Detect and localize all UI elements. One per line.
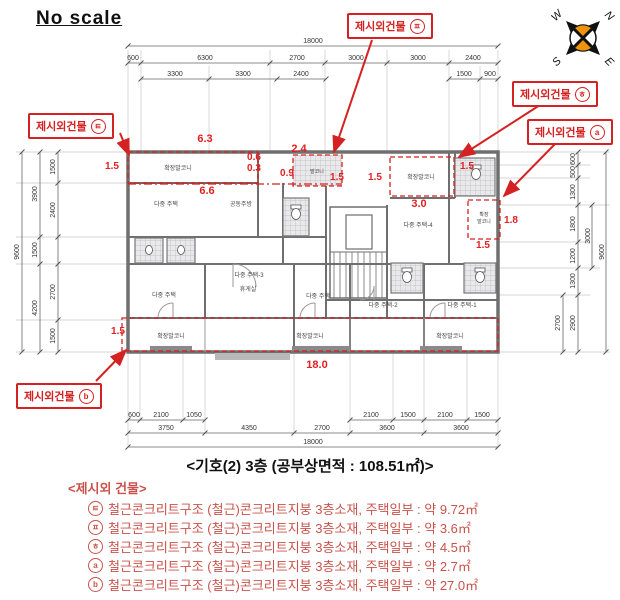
dim-label: 2100 bbox=[363, 412, 379, 419]
legend-item-text: 철근콘크리트구조 (철근)콘크리트지붕 3층소재, 주택일부 : 약 27.0㎡ bbox=[108, 575, 478, 594]
red-dim: 6.6 bbox=[199, 185, 214, 197]
callout-label: 제시외건물 bbox=[520, 86, 571, 102]
dim-label: 3000 bbox=[410, 55, 426, 62]
dim-label: 2700 bbox=[289, 55, 305, 62]
annex-symbol: ㅎ bbox=[575, 87, 590, 102]
room-label: 확장발코니 bbox=[407, 173, 435, 181]
dim-label: 600 bbox=[127, 55, 139, 62]
dim-label: 2700 bbox=[314, 425, 330, 432]
dim-label: 3000 bbox=[585, 228, 592, 244]
room-label: 확장발코니 bbox=[157, 332, 185, 340]
legend-item: ㅌ 철근콘크리트구조 (철근)콘크리트지붕 3층소재, 주택일부 : 약 9.7… bbox=[88, 499, 478, 518]
room-label: 다중 주택 bbox=[152, 291, 176, 299]
dim-label: 9600 bbox=[599, 244, 606, 260]
room-label: 다중 주택 bbox=[306, 292, 330, 300]
red-dim: 1.5 bbox=[330, 172, 344, 183]
red-dim: 18.0 bbox=[306, 359, 327, 371]
room-label: 발코니 bbox=[477, 218, 491, 225]
dim-label: 3300 bbox=[167, 71, 183, 78]
legend-item-text: 철근콘크리트구조 (철근)콘크리트지붕 3층소재, 주택일부 : 약 3.6㎡ bbox=[108, 518, 471, 537]
dim-label: 3600 bbox=[453, 425, 469, 432]
legend-item-text: 철근콘크리트구조 (철근)콘크리트지붕 3층소재, 주택일부 : 약 9.72㎡ bbox=[108, 499, 478, 518]
dim-label: 18000 bbox=[303, 38, 323, 45]
annex-symbol: b bbox=[88, 577, 103, 592]
dim-label: 1500 bbox=[400, 412, 416, 419]
dim-label: 1500 bbox=[456, 71, 472, 78]
red-dim: 2.4 bbox=[291, 143, 307, 155]
callout-label: 제시외건물 bbox=[535, 124, 586, 140]
red-dim: 0.6 bbox=[247, 152, 261, 163]
dim-label: 900 bbox=[484, 71, 496, 78]
red-dim: 1.8 bbox=[504, 215, 518, 226]
red-dim: 1.5 bbox=[105, 161, 119, 172]
dim-label: 6300 bbox=[197, 55, 213, 62]
dim-label: 1200 bbox=[570, 248, 577, 264]
compass-w: W bbox=[549, 7, 566, 24]
dim-label: 1050 bbox=[186, 412, 202, 419]
stairwell bbox=[330, 207, 387, 298]
dim-label: 2700 bbox=[555, 315, 562, 331]
dim-label: 3600 bbox=[379, 425, 395, 432]
room-label: 확장 bbox=[479, 211, 489, 218]
dim-label: 1500 bbox=[474, 412, 490, 419]
dim-label: 1300 bbox=[570, 184, 577, 200]
annex-symbol: ㅌ bbox=[91, 119, 106, 134]
red-dim: 6.3 bbox=[197, 133, 212, 145]
callout-label: 제시외건물 bbox=[24, 388, 75, 404]
annex-symbol: a bbox=[88, 558, 103, 573]
legend-heading: <제시외 건물> bbox=[68, 478, 478, 497]
callout-annex-right-upper: 제시외건물 ㅎ bbox=[512, 81, 598, 107]
red-dim: 1.5 bbox=[111, 326, 125, 337]
annex-symbol: a bbox=[590, 125, 605, 140]
extension-lines bbox=[16, 50, 610, 447]
room-label: 발코니 bbox=[310, 168, 324, 175]
callout-annex-bottom: 제시외건물 b bbox=[16, 383, 102, 409]
callout-annex-top: 제시외건물 ㅍ bbox=[347, 13, 433, 39]
legend-item-text: 철근콘크리트구조 (철근)콘크리트지붕 3층소재, 주택일부 : 약 4.5㎡ bbox=[108, 537, 471, 556]
dim-label: 600 bbox=[128, 412, 140, 419]
red-dim: 1.5 bbox=[476, 240, 490, 251]
dim-label: 1500 bbox=[32, 242, 39, 258]
dim-label: 2400 bbox=[50, 202, 57, 218]
dim-label: 3300 bbox=[235, 71, 251, 78]
dim-label: 18000 bbox=[303, 439, 323, 446]
dim-label: 3000 bbox=[348, 55, 364, 62]
dim-label: 3750 bbox=[158, 425, 174, 432]
dim-label: 9600 bbox=[14, 244, 21, 260]
compass-s: S bbox=[550, 55, 564, 69]
legend-item: ㅍ 철근콘크리트구조 (철근)콘크리트지붕 3층소재, 주택일부 : 약 3.6… bbox=[88, 518, 478, 537]
compass-e: E bbox=[602, 55, 616, 69]
dim-label: 600 bbox=[570, 153, 577, 165]
callout-label: 제시외건물 bbox=[36, 118, 87, 134]
dim-label: 2100 bbox=[153, 412, 169, 419]
red-dim: 0.9 bbox=[280, 168, 294, 179]
dim-label: 2700 bbox=[50, 284, 57, 300]
room-label: 확장발코니 bbox=[296, 332, 324, 340]
legend-item: b 철근콘크리트구조 (철근)콘크리트지붕 3층소재, 주택일부 : 약 27.… bbox=[88, 575, 478, 594]
room-label: 휴게실 bbox=[240, 285, 257, 293]
legend-item-text: 철근콘크리트구조 (철근)콘크리트지붕 3층소재, 주택일부 : 약 2.7㎡ bbox=[108, 556, 471, 575]
callout-annex-left: 제시외건물 ㅌ bbox=[28, 113, 114, 139]
callout-annex-right-lower: 제시외건물 a bbox=[527, 119, 613, 145]
room-label: 다중 주택 bbox=[154, 200, 178, 208]
legend-item: a 철근콘크리트구조 (철근)콘크리트지붕 3층소재, 주택일부 : 약 2.7… bbox=[88, 556, 478, 575]
dim-label: 2400 bbox=[465, 55, 481, 62]
room-label: 공동주방 bbox=[230, 200, 253, 208]
compass-rose: W N S E bbox=[549, 7, 616, 69]
room-label: 다중 주택-4 bbox=[403, 221, 433, 229]
annex-symbol: ㅍ bbox=[88, 520, 103, 535]
drawing-title: <기호(2) 3층 (공부상면적 : 108.51㎡)> bbox=[0, 455, 620, 476]
dim-label: 1300 bbox=[570, 273, 577, 289]
red-dim: 0.3 bbox=[247, 163, 261, 174]
dim-label: 2900 bbox=[570, 315, 577, 331]
room-label: 다중 주택-2 bbox=[368, 301, 398, 309]
red-dim: 1.5 bbox=[460, 161, 474, 172]
annex-symbol: b bbox=[79, 389, 94, 404]
callout-label: 제시외건물 bbox=[355, 18, 406, 34]
dim-label: 500 bbox=[570, 166, 577, 178]
dim-label: 4350 bbox=[241, 425, 257, 432]
dim-label: 1800 bbox=[570, 216, 577, 232]
legend-item: ㅎ 철근콘크리트구조 (철근)콘크리트지붕 3층소재, 주택일부 : 약 4.5… bbox=[88, 537, 478, 556]
dim-label: 2100 bbox=[437, 412, 453, 419]
annex-symbol: ㅍ bbox=[410, 19, 425, 34]
annex-legend: <제시외 건물> ㅌ 철근콘크리트구조 (철근)콘크리트지붕 3층소재, 주택일… bbox=[68, 478, 478, 594]
room-label: 다중 주택-1 bbox=[447, 301, 477, 309]
compass-n: N bbox=[602, 9, 616, 23]
room-label: 다중 주택-3 bbox=[234, 271, 264, 279]
dim-label: 4200 bbox=[32, 300, 39, 316]
room-label: 확장발코니 bbox=[164, 164, 192, 172]
dim-label: 1500 bbox=[50, 159, 57, 175]
annex-symbol: ㅎ bbox=[88, 539, 103, 554]
dim-label: 2400 bbox=[293, 71, 309, 78]
red-dim: 1.5 bbox=[368, 172, 382, 183]
annex-symbol: ㅌ bbox=[88, 501, 103, 516]
red-dim: 3.0 bbox=[411, 198, 426, 210]
dim-label: 3900 bbox=[32, 186, 39, 202]
room-label: 확장발코니 bbox=[436, 332, 464, 340]
dim-label: 1500 bbox=[50, 328, 57, 344]
